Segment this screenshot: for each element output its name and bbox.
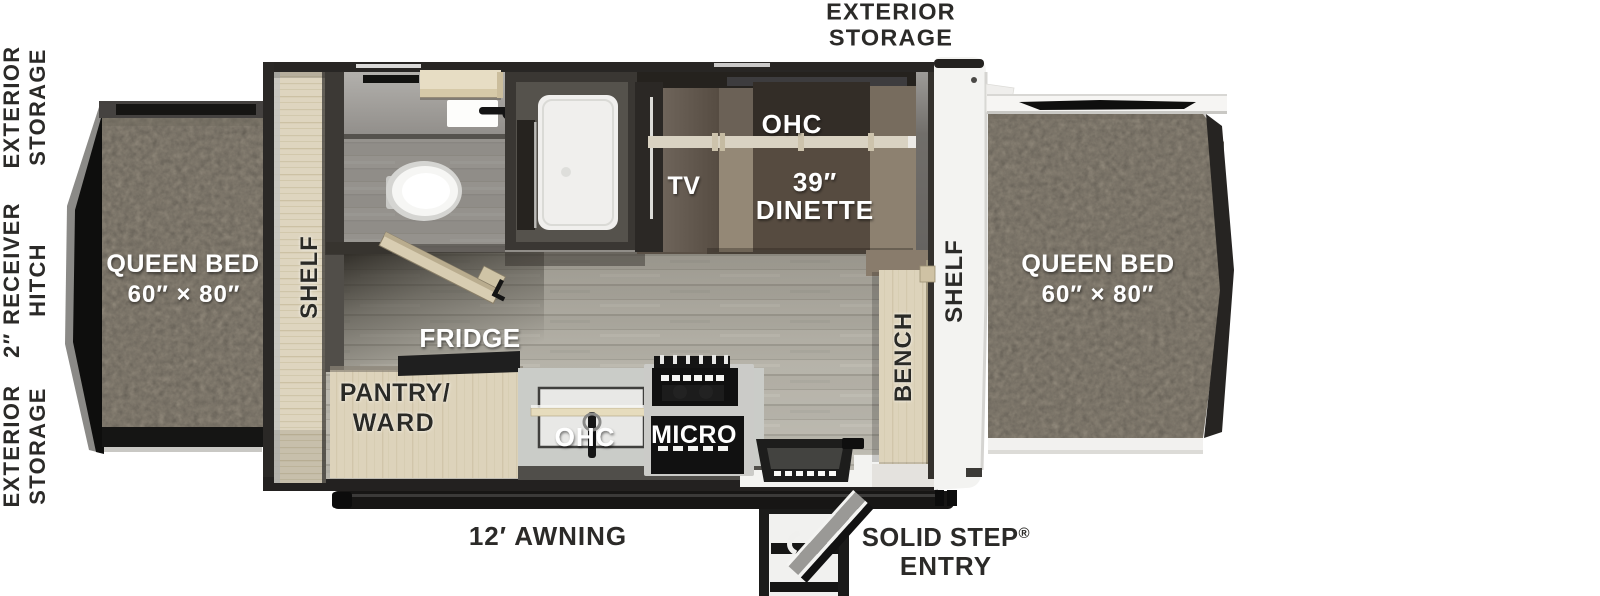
svg-text:BENCH: BENCH bbox=[890, 312, 917, 402]
svg-text:ENTRY: ENTRY bbox=[900, 551, 992, 581]
svg-text:EXTERIOR: EXTERIOR bbox=[0, 385, 24, 508]
svg-text:MICRO: MICRO bbox=[651, 421, 737, 449]
svg-text:QUEEN BED: QUEEN BED bbox=[106, 250, 259, 278]
svg-text:HITCH: HITCH bbox=[25, 243, 50, 317]
svg-text:SOLID STEP®: SOLID STEP® bbox=[862, 524, 1030, 552]
svg-text:60″ × 80″: 60″ × 80″ bbox=[1042, 281, 1155, 308]
svg-text:12′ AWNING: 12′ AWNING bbox=[469, 521, 627, 551]
svg-text:TV: TV bbox=[668, 172, 701, 200]
svg-text:QUEEN BED: QUEEN BED bbox=[1021, 250, 1174, 278]
svg-text:SHELF: SHELF bbox=[296, 235, 323, 319]
svg-text:2″ RECEIVER: 2″ RECEIVER bbox=[0, 202, 24, 358]
svg-text:OHC: OHC bbox=[555, 422, 616, 452]
svg-text:EXTERIOR: EXTERIOR bbox=[0, 46, 24, 169]
svg-text:STORAGE: STORAGE bbox=[25, 387, 50, 505]
svg-text:STORAGE: STORAGE bbox=[829, 25, 953, 51]
svg-text:DINETTE: DINETTE bbox=[756, 195, 874, 225]
svg-text:STORAGE: STORAGE bbox=[25, 48, 50, 166]
svg-text:39″: 39″ bbox=[793, 167, 837, 197]
svg-text:OHC: OHC bbox=[762, 109, 823, 139]
svg-text:FRIDGE: FRIDGE bbox=[419, 323, 520, 353]
svg-text:SHELF: SHELF bbox=[941, 239, 968, 323]
svg-text:PANTRY/: PANTRY/ bbox=[340, 379, 450, 407]
svg-text:WARD: WARD bbox=[353, 409, 435, 437]
svg-text:EXTERIOR: EXTERIOR bbox=[826, 0, 956, 25]
svg-text:60″ × 80″: 60″ × 80″ bbox=[128, 281, 241, 308]
